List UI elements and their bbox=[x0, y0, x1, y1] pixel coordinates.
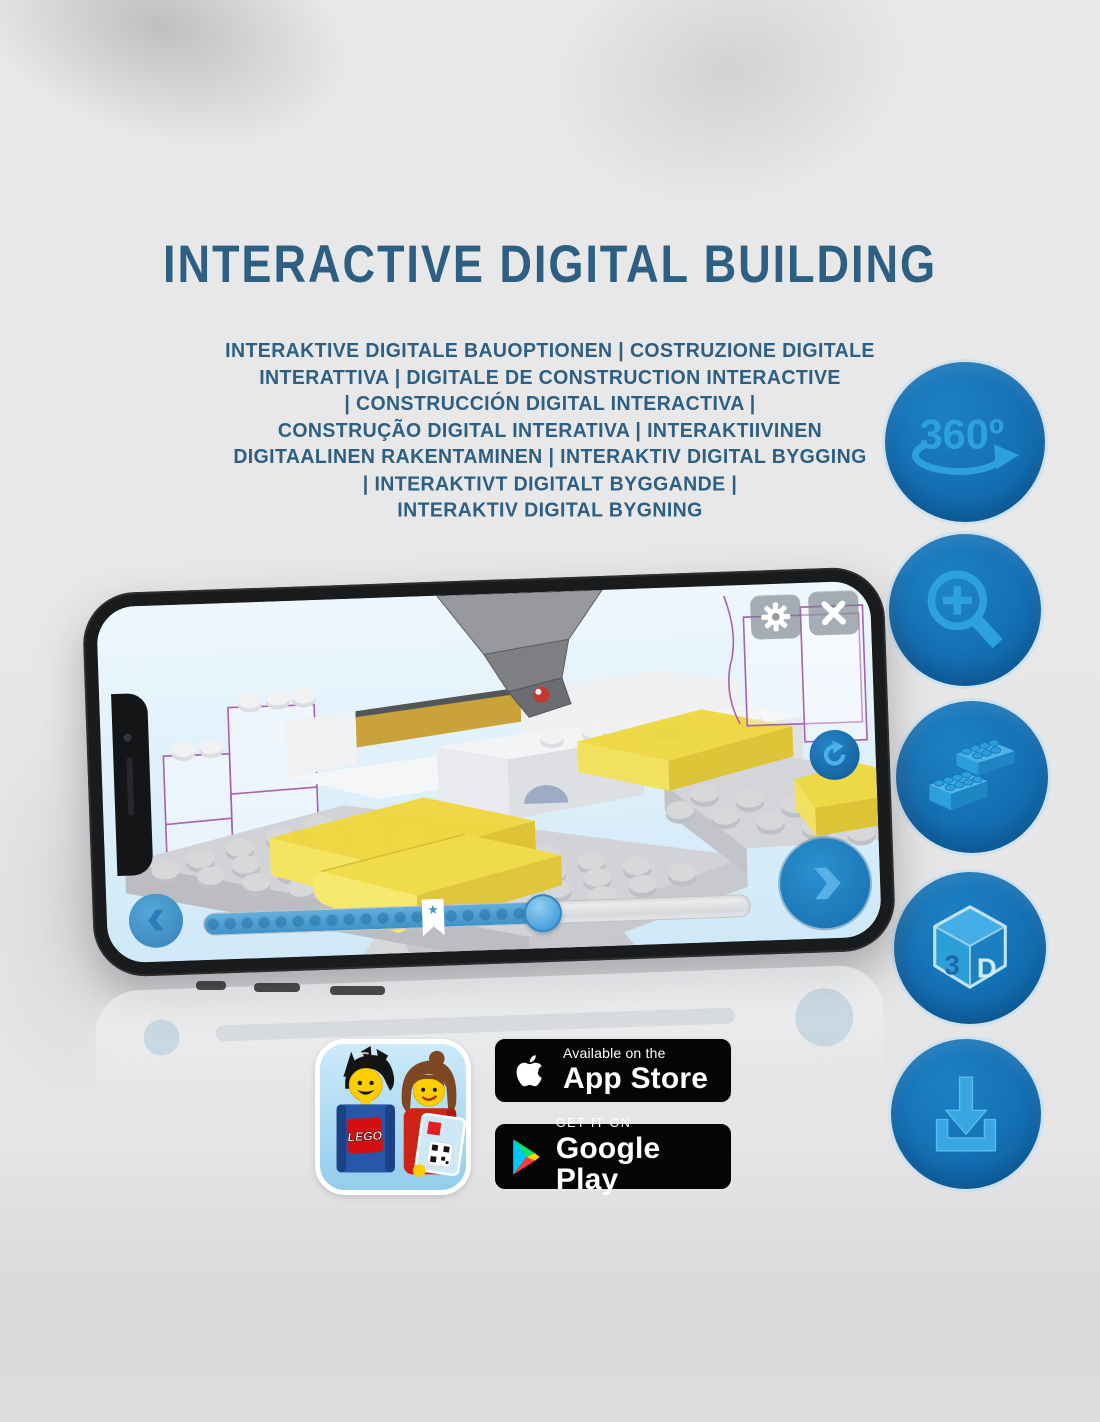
lego-app-icon[interactable]: LEGO bbox=[315, 1039, 471, 1195]
speaker-slit bbox=[126, 757, 134, 815]
page-title: INTERACTIVE DIGITAL BUILDING bbox=[22, 233, 1078, 295]
chevron-left-icon bbox=[142, 905, 169, 937]
chevron-right-icon bbox=[803, 862, 846, 905]
cube-letter-3: 3 bbox=[945, 949, 960, 980]
subtitle-line: INTERAKTIVE DIGITALE BAUOPTIONEN | COSTR… bbox=[0, 338, 1100, 365]
google-play-badge[interactable]: GET IT ON Google Play bbox=[493, 1122, 733, 1191]
close-button[interactable] bbox=[808, 590, 860, 636]
google-play-tagline: GET IT ON bbox=[556, 1117, 717, 1130]
feature-download bbox=[891, 1039, 1041, 1189]
cube-letter-d: D bbox=[977, 952, 997, 983]
feature-360-rotation: ​ 360º bbox=[885, 362, 1045, 522]
lego-logo-text: LEGO bbox=[347, 1128, 383, 1144]
download-icon bbox=[920, 1068, 1012, 1160]
feature-zoom bbox=[889, 534, 1041, 686]
lego-bricks-icon bbox=[922, 732, 1022, 823]
phone-notch bbox=[111, 693, 153, 876]
google-play-name: Google Play bbox=[556, 1133, 717, 1196]
app-store-badge[interactable]: Available on the App Store bbox=[493, 1037, 733, 1104]
marketing-image: INTERACTIVE DIGITAL BUILDING INTERAKTIVE… bbox=[0, 0, 1100, 1422]
360-label: 360º bbox=[920, 410, 1005, 457]
settings-button[interactable] bbox=[750, 594, 802, 640]
close-icon bbox=[818, 597, 849, 628]
rotate-icon bbox=[817, 737, 852, 772]
phone-mockup: ★ bbox=[82, 566, 897, 978]
feature-bricks bbox=[896, 701, 1048, 853]
360-rotation-icon: ​ 360º bbox=[907, 398, 1023, 487]
background-shading bbox=[0, 0, 475, 261]
apple-logo-icon bbox=[509, 1047, 551, 1095]
3d-cube-icon: 3 D bbox=[921, 899, 1019, 997]
camera-icon bbox=[123, 733, 131, 741]
app-store-tagline: Available on the bbox=[563, 1046, 708, 1061]
phone-screen: ★ bbox=[96, 581, 882, 964]
app-store-name: App Store bbox=[563, 1063, 708, 1095]
lego-app-art: LEGO bbox=[320, 1044, 466, 1190]
gear-icon bbox=[758, 599, 793, 634]
zoom-in-icon bbox=[917, 562, 1013, 658]
feature-3d-view: 3 D bbox=[894, 872, 1046, 1024]
star-icon: ★ bbox=[427, 902, 439, 917]
google-play-icon bbox=[509, 1135, 544, 1179]
